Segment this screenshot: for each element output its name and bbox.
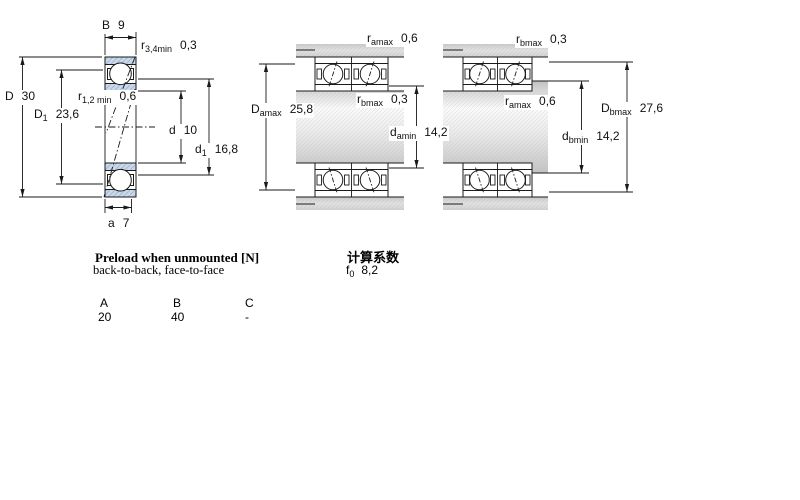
cage <box>382 69 387 79</box>
dim-label-ramax-b: ramax0,6 <box>504 95 557 110</box>
dim-label-D: D30 <box>4 90 36 105</box>
cage <box>345 69 350 79</box>
dim-label-rbmax-a: rbmax0,3 <box>356 93 409 108</box>
cage <box>354 69 359 79</box>
dim-label-ramax-a: ramax0,6 <box>366 32 419 47</box>
dim-label-a: a7 <box>107 217 130 232</box>
cage <box>491 175 496 185</box>
cage <box>345 175 350 185</box>
preload-table-header-b: B <box>173 297 181 310</box>
dim-label-r34min: r3,4min0,3 <box>140 39 198 54</box>
bearing-drawing-canvas: B9 r3,4min0,3 D30 D123,6 r1,2 min0,6 d10… <box>0 0 800 500</box>
dim-label-Damax: Damax25,8 <box>250 103 314 118</box>
preload-subtitle: back-to-back, face-to-face <box>93 264 224 278</box>
dim-label-d: d10 <box>168 124 198 139</box>
ball <box>110 63 132 85</box>
cage <box>465 175 470 185</box>
cage <box>491 69 496 79</box>
shaft-shoulder <box>532 81 548 92</box>
dim-label-dbmin: dbmin14,2 <box>561 130 621 145</box>
dim-label-r12min: r1,2 min0,6 <box>77 90 137 105</box>
cage <box>317 175 322 185</box>
dim-line-B <box>105 32 136 55</box>
preload-table-value-a: 20 <box>98 311 111 324</box>
f0-value: f08,2 <box>346 264 378 279</box>
cage <box>500 175 505 185</box>
preload-table-header-c: C <box>245 297 254 310</box>
cage <box>465 69 470 79</box>
dim-line-Damax <box>259 64 295 190</box>
preload-table-header-a: A <box>100 297 108 310</box>
dim-label-damin: damin14,2 <box>389 126 449 141</box>
cage <box>526 175 531 185</box>
dim-label-B: B9 <box>101 19 126 34</box>
cage <box>526 69 531 79</box>
dim-line-Dbmax <box>549 62 633 192</box>
shaft-shoulder <box>532 163 548 174</box>
dim-label-rbmax-b: rbmax0,3 <box>515 33 568 48</box>
ball <box>110 169 132 191</box>
cage <box>500 69 505 79</box>
dim-line-a <box>105 199 132 213</box>
preload-table-value-b: 40 <box>171 311 184 324</box>
preload-table-value-c: - <box>245 311 249 324</box>
cage <box>382 175 387 185</box>
dim-label-D1: D123,6 <box>33 108 80 123</box>
cage <box>354 175 359 185</box>
dim-label-Dbmax: Dbmax27,6 <box>600 102 664 117</box>
cage <box>317 69 322 79</box>
paired-bearing-mounting-b <box>443 44 633 210</box>
dim-label-d1: d116,8 <box>194 143 239 158</box>
